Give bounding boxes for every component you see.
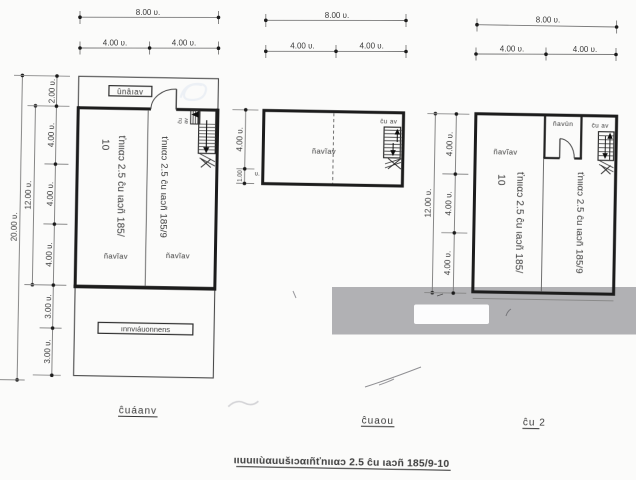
svg-text:8.00 ʋ.: 8.00 ʋ. <box>136 8 160 17</box>
svg-text:ñavĩav: ñavĩav <box>104 251 128 260</box>
svg-text:ñavĩav: ñavĩav <box>312 147 336 156</box>
svg-text:3.00 ʋ.: 3.00 ʋ. <box>43 339 52 364</box>
svg-text:4.00 ʋ.: 4.00 ʋ. <box>443 251 452 276</box>
svg-text:ûnâıav: ûnâıav <box>117 87 144 96</box>
svg-text:8.00 ʋ.: 8.00 ʋ. <box>325 11 349 20</box>
svg-text:ťnιιαɔ 2.5 ĉu ιaɔñ 185/: ťnιιαɔ 2.5 ĉu ιaɔñ 185/ <box>114 135 127 237</box>
svg-text:ťnιιαɔ 2.5 ĉu ιaɔñ 185/9: ťnιιαɔ 2.5 ĉu ιaɔñ 185/9 <box>157 136 170 238</box>
svg-text:10: 10 <box>99 139 110 151</box>
svg-text:av: av <box>184 118 190 124</box>
svg-text:ĉu av: ĉu av <box>380 118 398 125</box>
svg-text:4.00 ʋ.: 4.00 ʋ. <box>235 127 244 152</box>
svg-text:ĉu 2: ĉu 2 <box>523 417 546 428</box>
svg-text:10: 10 <box>495 174 506 186</box>
svg-text:ñavĩav: ñavĩav <box>166 251 190 260</box>
svg-text:ñavûn: ñavûn <box>553 121 574 128</box>
svg-text:ťnιιαɔ 2.5 ĉu ιaɔñ 185/: ťnιιαɔ 2.5 ĉu ιaɔñ 185/ <box>512 172 525 274</box>
svg-text:ñavĩav: ñavĩav <box>493 147 517 156</box>
svg-text:1.00: 1.00 <box>238 169 244 181</box>
svg-text:4.00 ʋ.: 4.00 ʋ. <box>445 132 454 157</box>
svg-text:4.00 ʋ.: 4.00 ʋ. <box>500 45 524 54</box>
svg-text:4.00 ʋ.: 4.00 ʋ. <box>172 38 196 47</box>
svg-text:4.00 ʋ.: 4.00 ʋ. <box>45 242 54 267</box>
svg-text:4.00 ʋ.: 4.00 ʋ. <box>46 182 55 207</box>
svg-text:ĉuáanv: ĉuáanv <box>119 405 157 417</box>
svg-text:ĉuaou: ĉuaou <box>362 415 394 427</box>
svg-text:ťnιιαɔ 2.5 ĉu ιaɔñ 185/9: ťnιιαɔ 2.5 ĉu ιaɔñ 185/9 <box>573 172 586 274</box>
svg-text:4.00 ʋ.: 4.00 ʋ. <box>360 42 384 51</box>
svg-text:ınnvıáuonnens: ınnvıáuonnens <box>121 324 171 334</box>
svg-text:4.00 ʋ.: 4.00 ʋ. <box>444 191 453 216</box>
svg-text:8.00 ʋ.: 8.00 ʋ. <box>536 15 560 24</box>
svg-text:4.00 ʋ.: 4.00 ʋ. <box>103 38 127 47</box>
svg-text:12.00 ʋ.: 12.00 ʋ. <box>24 181 34 210</box>
svg-text:4.00 ʋ.: 4.00 ʋ. <box>290 42 314 51</box>
svg-text:ʋ.: ʋ. <box>255 172 260 178</box>
svg-text:4.00 ʋ.: 4.00 ʋ. <box>573 45 597 54</box>
svg-text:20.00 ʋ.: 20.00 ʋ. <box>10 212 20 241</box>
svg-text:4.00 ʋ.: 4.00 ʋ. <box>47 123 56 148</box>
svg-text:ĉu av: ĉu av <box>592 122 610 129</box>
svg-text:12.00 ʋ.: 12.00 ʋ. <box>424 189 434 218</box>
svg-text:3.00 ʋ.: 3.00 ʋ. <box>44 294 53 319</box>
svg-text:2.00 ʋ.: 2.00 ʋ. <box>48 79 57 104</box>
